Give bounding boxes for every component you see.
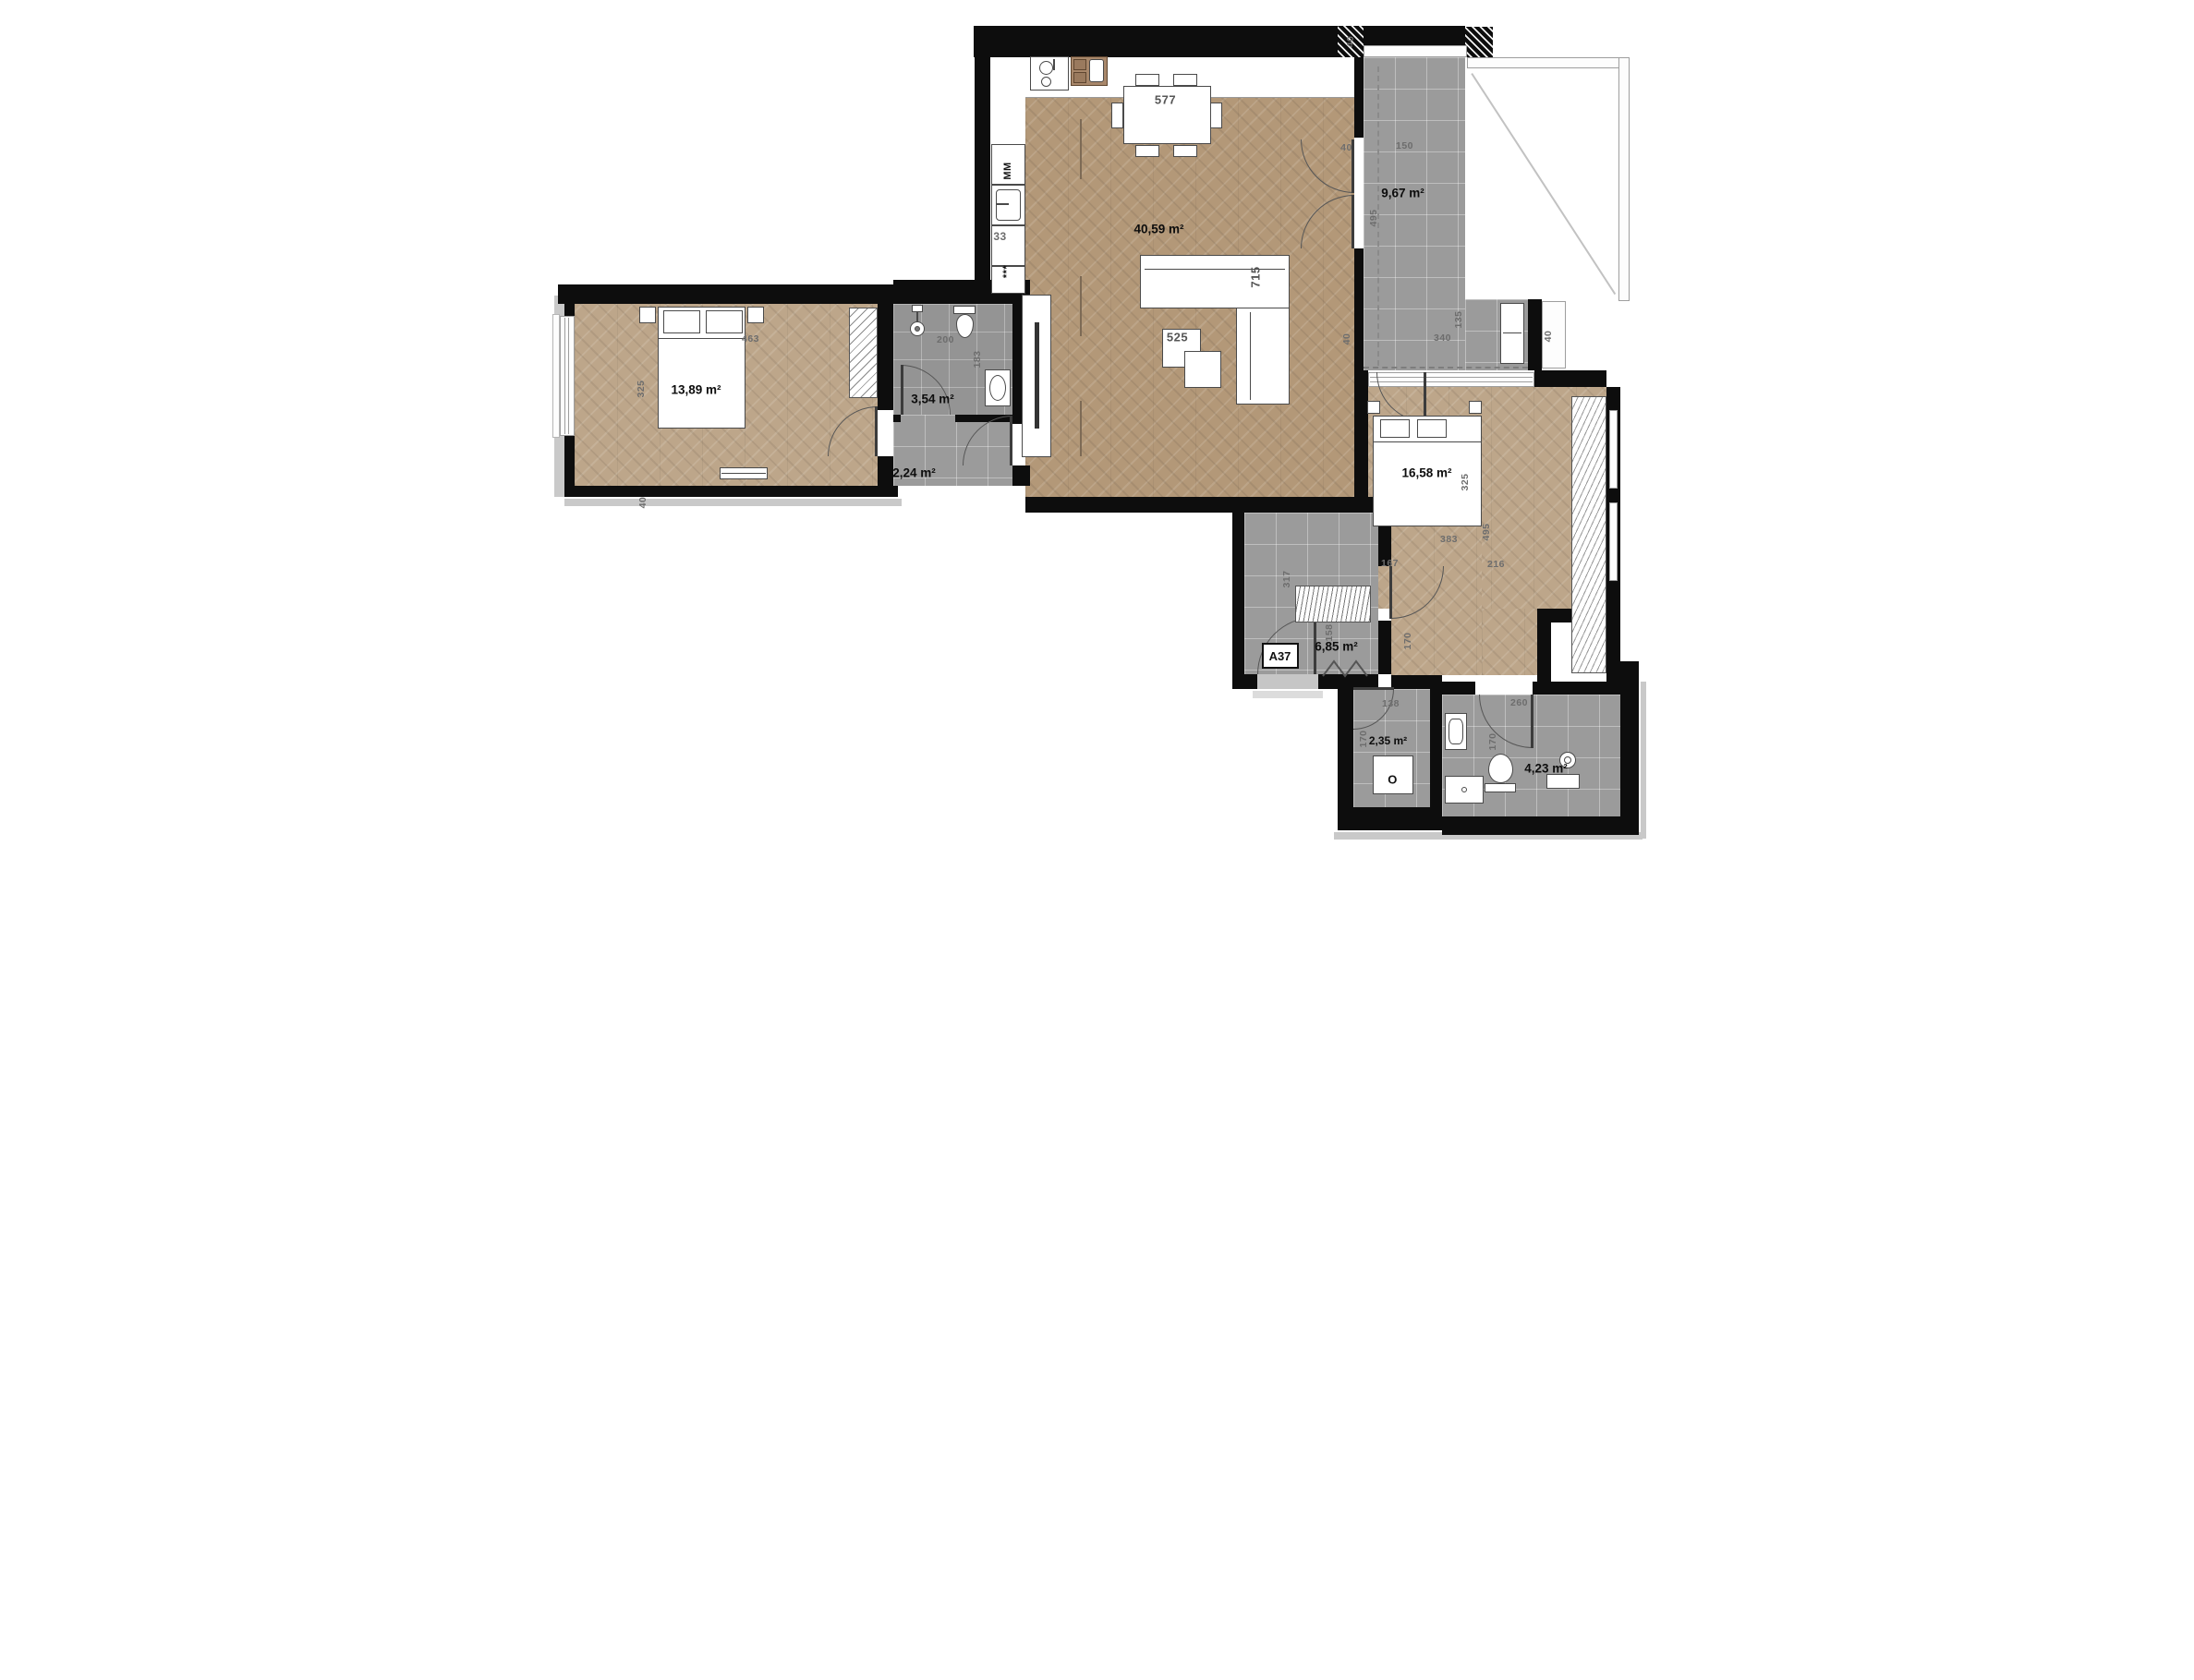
shower-hose [916, 312, 918, 321]
dim-183: 183 [972, 350, 983, 368]
toilet-bowl [956, 314, 974, 338]
coat-rack-zigzag [1321, 658, 1373, 680]
dim-170-storage: 170 [1358, 730, 1369, 747]
dining-chair [1173, 145, 1197, 157]
wall [1391, 675, 1442, 689]
dining-chair [1135, 145, 1159, 157]
dim-170-passage: 170 [1402, 632, 1413, 649]
boiler-label: O [1388, 773, 1398, 787]
terrace-glazing-outer-top [1467, 57, 1630, 68]
stove-knob [1053, 59, 1055, 70]
terrace-boundary-dashed-line [1364, 367, 1528, 369]
shower-drain-center [915, 326, 920, 332]
hallway-living-door-leaf [1010, 416, 1012, 465]
radiator-line [721, 473, 766, 474]
dim-40-top: 40 [1345, 36, 1356, 48]
wall [1354, 248, 1364, 370]
dim-170-bathroom2: 170 [1487, 732, 1498, 750]
shower-head-mount [912, 305, 923, 312]
sofa-size: 715 [1248, 266, 1262, 287]
toilet-tank [1485, 783, 1516, 792]
dining-chair [1173, 74, 1197, 86]
entrance-threshold [1257, 674, 1318, 689]
bedroom1-window [560, 316, 575, 436]
wall [1232, 674, 1257, 689]
wardrobe-corridor [1295, 586, 1371, 622]
wardrobe-bedroom1 [849, 308, 878, 398]
wall [1012, 465, 1030, 486]
nightstand [1469, 401, 1482, 414]
dim-135: 135 [1453, 310, 1464, 328]
terrace-unit-line [1503, 332, 1521, 333]
wall [1528, 299, 1542, 370]
dim-216: 216 [1487, 559, 1505, 570]
dim-40-right: 40 [1543, 331, 1554, 343]
area-storage: 2,35 m² [1369, 734, 1407, 747]
blanket-line [659, 338, 745, 339]
bedroom2-door-leaf [1389, 566, 1392, 619]
wall [1620, 682, 1639, 835]
floor-bedroom2-lower [1482, 609, 1537, 675]
washing-machine-drum [996, 189, 1021, 221]
dim-325-bedroom2: 325 [1460, 473, 1471, 490]
bathroom1-door-leaf [901, 365, 903, 415]
dim-40-bedroom1: 40 [637, 497, 649, 509]
pillow [706, 310, 743, 333]
wall [1338, 807, 1442, 830]
bathroom2-sink-basin [1449, 719, 1463, 744]
area-bathroom1: 3,54 m² [911, 393, 954, 406]
wall [564, 433, 575, 486]
dining-table-size: 577 [1155, 93, 1176, 107]
parquet-joint [1080, 276, 1082, 336]
wall [1606, 661, 1639, 682]
wall [1364, 26, 1465, 45]
dim-463: 463 [742, 333, 759, 344]
bedroom2-side-window [1609, 502, 1618, 581]
dim-150: 150 [1396, 140, 1413, 151]
floor-plan: A37 13,89 m² 3,54 m² 2,24 m² 40,59 m² 9,… [549, 4, 1646, 844]
wall [1534, 370, 1606, 387]
dim-325-bedroom1: 325 [636, 380, 647, 397]
area-living: 40,59 m² [1133, 223, 1183, 236]
stove-burner [1041, 77, 1051, 87]
blanket-line [1374, 441, 1481, 442]
nightstand [747, 307, 764, 323]
stove-burner [1039, 61, 1053, 75]
window-frame-line [568, 318, 569, 434]
sofa-seat-line [1250, 312, 1251, 400]
wall [878, 304, 893, 410]
wall [1533, 682, 1620, 695]
area-bathroom2: 4,23 m² [1524, 762, 1568, 776]
wall [1354, 370, 1368, 507]
dim-383: 383 [1440, 534, 1458, 545]
coffee-table-size: 525 [1167, 331, 1188, 344]
stars-label: *** [1001, 265, 1012, 278]
pillow [663, 310, 700, 333]
sofa-seat-line [1145, 269, 1285, 270]
bedroom2-side-window [1609, 410, 1618, 489]
wall [1442, 816, 1639, 835]
area-corridor: 6,85 m² [1315, 640, 1358, 654]
washing-machine-handle [996, 203, 1009, 205]
cabinet-knob [1461, 787, 1467, 792]
dim-495-bedroom2: 495 [1481, 523, 1492, 540]
nightstand [1367, 401, 1380, 414]
terrace-bedroom2-door-leaf [1424, 372, 1426, 422]
kitchen-sink-drawer [1073, 59, 1086, 70]
wall [1430, 689, 1442, 816]
shower-stand [1546, 774, 1580, 789]
unit-label-box: A37 [1262, 643, 1299, 669]
wall [974, 26, 1338, 57]
terrace-glazing-top [1364, 45, 1467, 57]
parquet-joint [1080, 401, 1082, 456]
dim-495-terrace: 495 [1368, 209, 1379, 226]
wall [1537, 609, 1551, 682]
wall [1442, 682, 1475, 695]
dim-167: 167 [1381, 558, 1399, 569]
dim-40-living: 40 [1341, 333, 1352, 345]
terrace-glazing-step-line [1471, 73, 1616, 295]
terrace-unit [1500, 303, 1524, 364]
toilet-tank [953, 306, 976, 314]
area-bedroom1: 13,89 m² [671, 383, 721, 397]
toilet-bowl [1488, 754, 1513, 783]
storage-door-leaf [1353, 687, 1394, 690]
dim-200: 200 [937, 334, 954, 345]
wall-end-hatch [1465, 27, 1493, 57]
dim-40-terrace: 40 [1340, 142, 1352, 153]
sofa-vertical [1236, 308, 1290, 405]
dining-chair [1135, 74, 1159, 86]
dining-chair [1210, 103, 1222, 128]
french-door-leaf-lower [1352, 195, 1354, 248]
coffee-table-small [1184, 351, 1221, 388]
dim-317: 317 [1281, 570, 1292, 587]
terrace-glazing-outer-right [1618, 57, 1630, 301]
bathroom1-sink-basin [989, 375, 1006, 401]
wardrobe-bedroom2 [1571, 396, 1606, 673]
unit-label: A37 [1269, 649, 1291, 663]
kitchen-sink-drawer [1073, 72, 1086, 83]
slab-shadow-bottom-left [564, 499, 902, 506]
entrance-step [1253, 691, 1323, 698]
parquet-joint [1080, 119, 1082, 179]
sofa-horizontal [1140, 255, 1290, 308]
wall [893, 415, 901, 422]
area-terrace: 9,67 m² [1381, 187, 1424, 200]
kitchen-sink-basin [1089, 59, 1104, 82]
wall [558, 284, 898, 304]
dim-138: 138 [1382, 698, 1400, 709]
wall [1354, 57, 1364, 138]
wall [878, 456, 893, 486]
wall [1338, 689, 1353, 807]
dim-340: 340 [1434, 332, 1451, 344]
wall [1378, 621, 1391, 674]
pillow [1417, 419, 1447, 438]
bedroom1-door-leaf [875, 406, 878, 456]
bedroom1-window-sill [552, 314, 560, 438]
wall [1025, 497, 1238, 513]
wall [1232, 513, 1244, 674]
nightstand [639, 307, 656, 323]
pillow [1380, 419, 1410, 438]
tv-screen [1035, 322, 1039, 429]
wall [975, 45, 990, 304]
area-bedroom2: 16,58 m² [1401, 466, 1451, 480]
dining-chair [1111, 103, 1123, 128]
bathroom2-door-leaf [1531, 695, 1533, 748]
wall [564, 486, 898, 497]
area-hallway: 2,24 m² [892, 466, 936, 480]
cabinet-33-label: 33 [993, 230, 1006, 243]
slab-shadow-right [1641, 682, 1646, 839]
dim-260: 260 [1510, 697, 1528, 708]
washing-machine-label: MM [1002, 162, 1013, 179]
window-frame-line [564, 318, 565, 434]
